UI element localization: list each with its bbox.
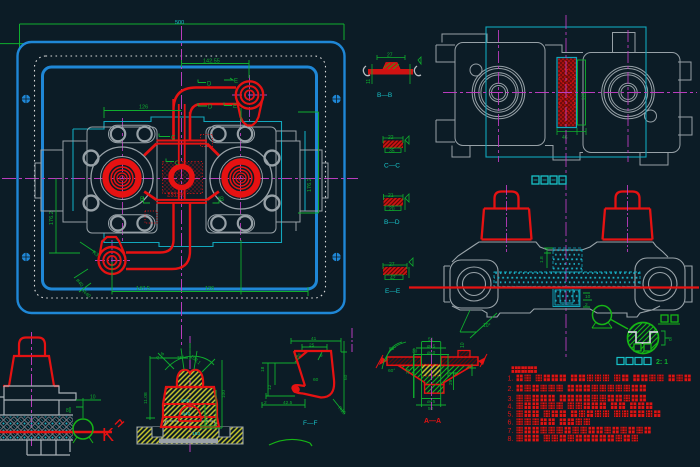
- svg-text:1.8: 1.8: [539, 256, 545, 263]
- svg-text:2: 1: 2: 1: [656, 359, 668, 366]
- svg-text:C: C: [175, 161, 180, 167]
- svg-text:22: 22: [388, 135, 394, 141]
- svg-text:60°: 60°: [388, 368, 395, 374]
- svg-text:10°: 10°: [483, 323, 491, 329]
- svg-text:6.: 6.: [508, 419, 514, 426]
- svg-text:8.: 8.: [508, 436, 514, 443]
- svg-text:B: B: [140, 197, 144, 203]
- svg-text:29: 29: [448, 379, 454, 385]
- svg-text:27: 27: [389, 262, 395, 268]
- svg-text:B—D: B—D: [384, 219, 400, 226]
- svg-text:65°: 65°: [389, 346, 396, 352]
- svg-text:27: 27: [387, 53, 393, 59]
- svg-text:30: 30: [412, 349, 418, 355]
- svg-text:41: 41: [311, 336, 317, 342]
- svg-text:D: D: [207, 82, 212, 88]
- svg-text:100: 100: [221, 390, 227, 398]
- svg-text:2: 2: [264, 400, 267, 406]
- svg-text:42.5: 42.5: [283, 400, 293, 406]
- svg-text:ø40: ø40: [182, 411, 191, 417]
- svg-text:2: 2: [585, 302, 588, 308]
- svg-text:31.5: 31.5: [204, 415, 209, 424]
- svg-text:C—C: C—C: [384, 163, 400, 170]
- svg-text:10: 10: [585, 294, 591, 300]
- svg-text:500: 500: [175, 20, 184, 26]
- svg-text:60: 60: [343, 374, 349, 380]
- svg-text:147.5: 147.5: [136, 286, 150, 292]
- svg-text:25: 25: [309, 343, 315, 349]
- svg-text:E—E: E—E: [385, 288, 401, 295]
- svg-text:163: 163: [192, 431, 200, 437]
- svg-text:50: 50: [428, 406, 434, 412]
- svg-text:1.: 1.: [508, 376, 514, 383]
- svg-text:21: 21: [388, 193, 394, 199]
- svg-text:K: K: [102, 425, 114, 445]
- svg-text:4.: 4.: [508, 403, 514, 410]
- svg-text:10: 10: [460, 342, 466, 348]
- svg-text:126: 126: [139, 105, 148, 111]
- svg-text:160: 160: [581, 92, 586, 100]
- svg-text:ø50: ø50: [181, 398, 190, 404]
- svg-text:35: 35: [389, 149, 395, 155]
- svg-text:10: 10: [90, 395, 96, 401]
- svg-text:12: 12: [267, 384, 273, 390]
- svg-text:75°: 75°: [177, 355, 184, 361]
- svg-text:A—A: A—A: [424, 418, 441, 425]
- svg-text:231.96: 231.96: [167, 193, 186, 199]
- svg-text:46: 46: [562, 135, 568, 141]
- svg-text:51: 51: [428, 337, 434, 343]
- svg-text:42: 42: [390, 276, 396, 282]
- svg-text:8: 8: [669, 337, 672, 343]
- svg-text:3.: 3.: [508, 396, 514, 403]
- svg-text:142.55: 142.55: [203, 59, 220, 65]
- svg-text:20: 20: [389, 207, 395, 213]
- svg-text:5.: 5.: [508, 411, 514, 418]
- svg-text:B—B: B—B: [377, 92, 392, 99]
- svg-text:E: E: [234, 79, 238, 85]
- svg-text:C: C: [171, 136, 176, 142]
- svg-text:7.: 7.: [508, 428, 514, 435]
- svg-text:F—F: F—F: [303, 420, 317, 427]
- svg-text:28: 28: [405, 368, 411, 374]
- svg-text:D: D: [208, 105, 213, 111]
- svg-text:60: 60: [313, 377, 319, 383]
- svg-text:176.2: 176.2: [49, 211, 55, 225]
- svg-text:18: 18: [260, 366, 266, 372]
- svg-text:11.08: 11.08: [143, 392, 149, 404]
- svg-text:126: 126: [205, 286, 214, 292]
- svg-text:8: 8: [66, 408, 69, 414]
- svg-text:E: E: [233, 104, 237, 110]
- svg-text:2.: 2.: [508, 386, 514, 393]
- svg-text:176.2: 176.2: [307, 178, 313, 192]
- svg-text:B: B: [220, 197, 224, 203]
- svg-text:11: 11: [366, 79, 372, 84]
